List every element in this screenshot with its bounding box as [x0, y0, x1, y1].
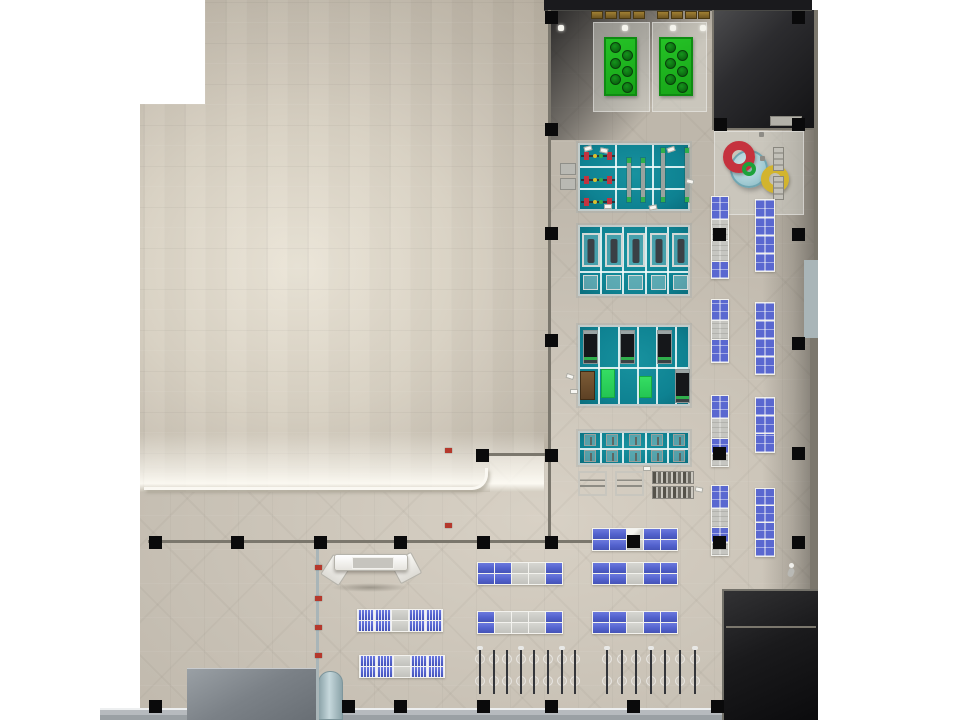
small-machine [584, 434, 596, 446]
table-cell [610, 529, 626, 539]
green-mat-2 [659, 37, 693, 96]
table-cell [627, 574, 643, 584]
blue-table-group [592, 562, 678, 585]
small-machine [606, 450, 618, 462]
structural-column [545, 11, 558, 24]
bike-frame [547, 650, 549, 694]
small-machine [651, 450, 663, 462]
wall [804, 260, 818, 338]
weight-dot [593, 178, 597, 182]
ceiling-light [622, 25, 628, 31]
structural-column [231, 536, 244, 549]
weight-plate [607, 176, 612, 184]
wall [548, 453, 551, 543]
table-cell [512, 563, 528, 573]
dumbbell-rack [652, 471, 694, 484]
table-cell [661, 623, 677, 633]
stretch-mat [639, 376, 652, 398]
storage-bench [605, 11, 617, 19]
strip-cell [712, 300, 728, 320]
table-cell [593, 529, 609, 539]
storage-bench [619, 11, 631, 19]
exercise-machine [580, 371, 595, 400]
bike-frame [621, 650, 623, 694]
structural-column [545, 227, 558, 240]
table-cell [360, 656, 376, 666]
small-item [760, 156, 765, 161]
kettlebell [677, 66, 688, 77]
storage-bench [633, 11, 645, 19]
structural-column [714, 118, 727, 131]
table-cell [512, 623, 528, 633]
paper-marker [604, 204, 612, 209]
small-station [673, 275, 688, 290]
bicycle [689, 646, 701, 698]
red-wall-item [315, 625, 322, 630]
table-cell [394, 656, 410, 666]
kettlebell [610, 42, 621, 53]
bike-frame [493, 650, 495, 694]
small-station [628, 275, 643, 290]
structural-column [477, 700, 490, 713]
weight-plate [584, 198, 589, 206]
blue-table-group [359, 655, 445, 678]
table-cell [428, 656, 444, 666]
platform-grid-line [580, 188, 688, 190]
table-cell [627, 623, 643, 633]
structural-column [713, 536, 726, 549]
small-machine [584, 450, 596, 462]
ceiling-light [670, 25, 676, 31]
dark-zone-top-right [712, 10, 818, 130]
red-wall-item [315, 653, 322, 658]
strip-cell [756, 357, 774, 374]
table-cell [512, 574, 528, 584]
structural-column [545, 449, 558, 462]
bike-frame [679, 650, 681, 694]
bike-seat [559, 646, 565, 650]
table-cell [644, 529, 660, 539]
strip-cell [712, 340, 728, 362]
table-cell [644, 540, 660, 550]
table-cell [426, 610, 442, 620]
bicycle [645, 646, 657, 698]
table-cell [529, 623, 545, 633]
storage-bench [657, 11, 669, 19]
dark-zone-bottom-right [722, 589, 818, 720]
table-cell [546, 612, 562, 622]
platform-grid-line [598, 327, 600, 404]
bike-seat [518, 646, 524, 650]
blue-table-group [477, 562, 563, 585]
bike-frame [520, 650, 522, 694]
table-cell [661, 529, 677, 539]
structural-column [394, 700, 407, 713]
rack-post [641, 158, 645, 202]
table-cell [593, 623, 609, 633]
table-cell [610, 574, 626, 584]
treadmill [675, 369, 690, 403]
weight-dot [599, 154, 603, 158]
bench-strip [755, 488, 775, 557]
roof-rounded-edge [144, 468, 488, 490]
bicycle [569, 646, 581, 698]
bike-frame [606, 650, 608, 694]
kettlebell [610, 74, 621, 85]
bicycle [616, 646, 628, 698]
table-cell [529, 574, 545, 584]
paper-marker [570, 389, 578, 394]
structural-column [149, 536, 162, 549]
table-cell [512, 612, 528, 622]
bench-strip [711, 299, 729, 363]
bike-frame [635, 650, 637, 694]
strip-cell [756, 254, 774, 271]
red-wall-item [445, 448, 452, 453]
table-cell [392, 621, 408, 631]
bike-frame [664, 650, 666, 694]
structural-column [627, 535, 640, 548]
paper-marker [643, 466, 651, 471]
bench-pad [611, 239, 618, 263]
ceiling-light [700, 25, 706, 31]
structural-column [545, 700, 558, 713]
strip-cell [712, 197, 728, 219]
bike-frame [574, 650, 576, 694]
weight-plate [584, 176, 589, 184]
kettlebell [622, 50, 633, 61]
bicycle [542, 646, 554, 698]
blue-table-group [477, 611, 563, 634]
bike-frame [506, 650, 508, 694]
structural-column [149, 700, 162, 713]
kettlebell [677, 82, 688, 93]
blue-table-group [357, 609, 443, 632]
green-pool-ring [742, 162, 756, 176]
table-cell [409, 610, 425, 620]
bicycle [528, 646, 540, 698]
table-cell [661, 574, 677, 584]
bicycle [474, 646, 486, 698]
locker-shelf [773, 176, 784, 200]
table-cell [627, 563, 643, 573]
table-cell [428, 667, 444, 677]
strip-cell [712, 396, 728, 418]
bicycle [556, 646, 568, 698]
table-cell [610, 540, 626, 550]
table-cell [644, 574, 660, 584]
bench-pad [678, 239, 685, 263]
bike-seat [604, 646, 610, 650]
table-cell [426, 621, 442, 631]
utility-box [187, 668, 318, 720]
table-cell [377, 656, 393, 666]
table-cell [495, 574, 511, 584]
strip-cell [756, 321, 774, 338]
bench-pad [656, 239, 663, 263]
small-station [606, 275, 621, 290]
wall [482, 453, 552, 456]
wall [814, 10, 818, 260]
bike-frame [694, 650, 696, 694]
kettlebell [665, 74, 676, 85]
platform-grid-line [580, 166, 688, 168]
table-cell [411, 656, 427, 666]
bike-frame [479, 650, 481, 694]
table-cell [610, 612, 626, 622]
table-cell [644, 612, 660, 622]
table-cell [495, 563, 511, 573]
strip-cell [756, 506, 774, 522]
kettlebell [665, 42, 676, 53]
table-cell [593, 574, 609, 584]
bicycle [659, 646, 671, 698]
bike-frame [650, 650, 652, 694]
bike-frame [533, 650, 535, 694]
rack-post [627, 158, 631, 202]
bench-pad [633, 239, 640, 263]
small-item [759, 132, 764, 137]
bicycle [601, 646, 613, 698]
table-cell [593, 612, 609, 622]
bench-press-station [650, 233, 668, 267]
small-machine [629, 434, 641, 446]
structural-column [792, 536, 805, 549]
platform-grid-line [580, 271, 688, 273]
side-block [560, 163, 576, 175]
bike-row [601, 646, 703, 698]
table-cell [358, 621, 374, 631]
kettlebell [610, 58, 621, 69]
table-cell [610, 563, 626, 573]
structural-column [394, 536, 407, 549]
storage-bench [685, 11, 697, 19]
small-station [651, 275, 666, 290]
strip-cell [712, 419, 728, 438]
structural-column [545, 536, 558, 549]
table-cell [495, 612, 511, 622]
structural-column [545, 123, 558, 136]
free-weight-bench [578, 471, 607, 496]
strip-cell [712, 509, 728, 527]
structural-column [314, 536, 327, 549]
strip-cell [756, 236, 774, 253]
storage-bench [671, 11, 683, 19]
weight-plate [607, 152, 612, 160]
strip-cell [756, 540, 774, 556]
table-cell [661, 612, 677, 622]
platform-grid-line [615, 145, 617, 209]
rack-post [661, 148, 665, 202]
table-cell [546, 623, 562, 633]
wall [726, 626, 816, 628]
bench-strip [755, 302, 775, 375]
platform-grid-line [580, 367, 688, 369]
dumbbell-rack [652, 486, 694, 499]
free-weight-bench [615, 471, 644, 496]
table-cell [375, 621, 391, 631]
rack-post [685, 148, 689, 202]
table-cell [661, 540, 677, 550]
structural-column [627, 700, 640, 713]
table-cell [478, 574, 494, 584]
table-cell [394, 667, 410, 677]
bench-press-station [627, 233, 645, 267]
wall [712, 10, 714, 130]
wall [810, 338, 818, 589]
strip-cell [712, 241, 728, 261]
side-block [560, 178, 576, 190]
table-cell [392, 610, 408, 620]
bicycle [515, 646, 527, 698]
green-mat-1 [604, 37, 637, 96]
bicycle [501, 646, 513, 698]
red-wall-item [315, 565, 322, 570]
small-station [583, 275, 598, 290]
table-cell [627, 612, 643, 622]
table-cell [411, 667, 427, 677]
strip-cell [756, 434, 774, 452]
treadmill [620, 330, 635, 364]
structural-column [792, 11, 805, 24]
red-wall-item [315, 596, 322, 601]
structural-column [342, 700, 355, 713]
weight-dot [599, 178, 603, 182]
table-cell [644, 563, 660, 573]
reception-counter [352, 557, 394, 569]
bike-seat [477, 646, 483, 650]
small-machine [673, 434, 685, 446]
kettlebell [665, 58, 676, 69]
bike-seat [692, 646, 698, 650]
roof-top-band [544, 0, 812, 11]
table-cell [478, 563, 494, 573]
table-cell [593, 540, 609, 550]
structural-column [476, 449, 489, 462]
cylinder-column [318, 671, 343, 720]
reception-shadow [331, 583, 409, 592]
strip-cell [756, 218, 774, 235]
table-cell [529, 563, 545, 573]
platform-grid-line [600, 227, 602, 294]
structural-column [792, 118, 805, 131]
strip-cell [756, 339, 774, 356]
strip-cell [756, 200, 774, 217]
barbell-station [581, 151, 615, 161]
table-cell [546, 574, 562, 584]
table-cell [360, 667, 376, 677]
storage-bench [698, 11, 710, 19]
small-machine [651, 434, 663, 446]
table-cell [661, 563, 677, 573]
bike-seat [648, 646, 654, 650]
table-cell [409, 621, 425, 631]
person [786, 562, 796, 577]
bicycle [488, 646, 500, 698]
small-machine [629, 450, 641, 462]
structural-column [477, 536, 490, 549]
bench-press-station [605, 233, 623, 267]
structural-column [792, 337, 805, 350]
table-cell [375, 610, 391, 620]
strip-cell [756, 398, 774, 415]
weight-dot [593, 200, 597, 204]
strip-cell [712, 321, 728, 339]
structural-column [792, 228, 805, 241]
structural-column [713, 447, 726, 460]
platform-grid-line [652, 145, 654, 209]
floor-plan-render [0, 0, 960, 720]
bench-strip [755, 397, 775, 453]
locker-shelf [773, 147, 784, 171]
table-cell [358, 610, 374, 620]
kettlebell [677, 50, 688, 61]
small-machine [606, 434, 618, 446]
structural-column [711, 700, 724, 713]
table-cell [495, 623, 511, 633]
strip-cell [712, 486, 728, 508]
table-cell [644, 623, 660, 633]
structural-column [545, 334, 558, 347]
kettlebell [622, 66, 633, 77]
bike-row [474, 646, 583, 698]
table-cell [377, 667, 393, 677]
strip-cell [756, 303, 774, 320]
table-cell [546, 563, 562, 573]
table-cell [478, 623, 494, 633]
table-cell [610, 623, 626, 633]
bike-frame [561, 650, 563, 694]
barbell-station [581, 175, 615, 185]
kettlebell [622, 82, 633, 93]
structural-column [792, 447, 805, 460]
structural-column [713, 228, 726, 241]
weight-plate [584, 152, 589, 160]
weight-dot [593, 154, 597, 158]
platform-grid-line [645, 227, 647, 294]
bicycle [674, 646, 686, 698]
bench-press-station [582, 233, 600, 267]
table-cell [478, 612, 494, 622]
bench-pad [588, 239, 595, 263]
treadmill [583, 330, 598, 364]
storage-bench [591, 11, 603, 19]
strip-cell [756, 489, 774, 505]
strip-cell [756, 416, 774, 433]
weight-dot [599, 200, 603, 204]
strip-cell [756, 523, 774, 539]
stretch-mat [601, 369, 615, 398]
blue-table-group [592, 611, 678, 634]
bench-press-station [672, 233, 690, 267]
ceiling-light [558, 25, 564, 31]
table-cell [529, 612, 545, 622]
strip-cell [712, 262, 728, 278]
red-wall-item [445, 523, 452, 528]
treadmill [657, 330, 672, 364]
small-machine [673, 450, 685, 462]
table-cell [593, 563, 609, 573]
bicycle [630, 646, 642, 698]
bench-strip [755, 199, 775, 272]
